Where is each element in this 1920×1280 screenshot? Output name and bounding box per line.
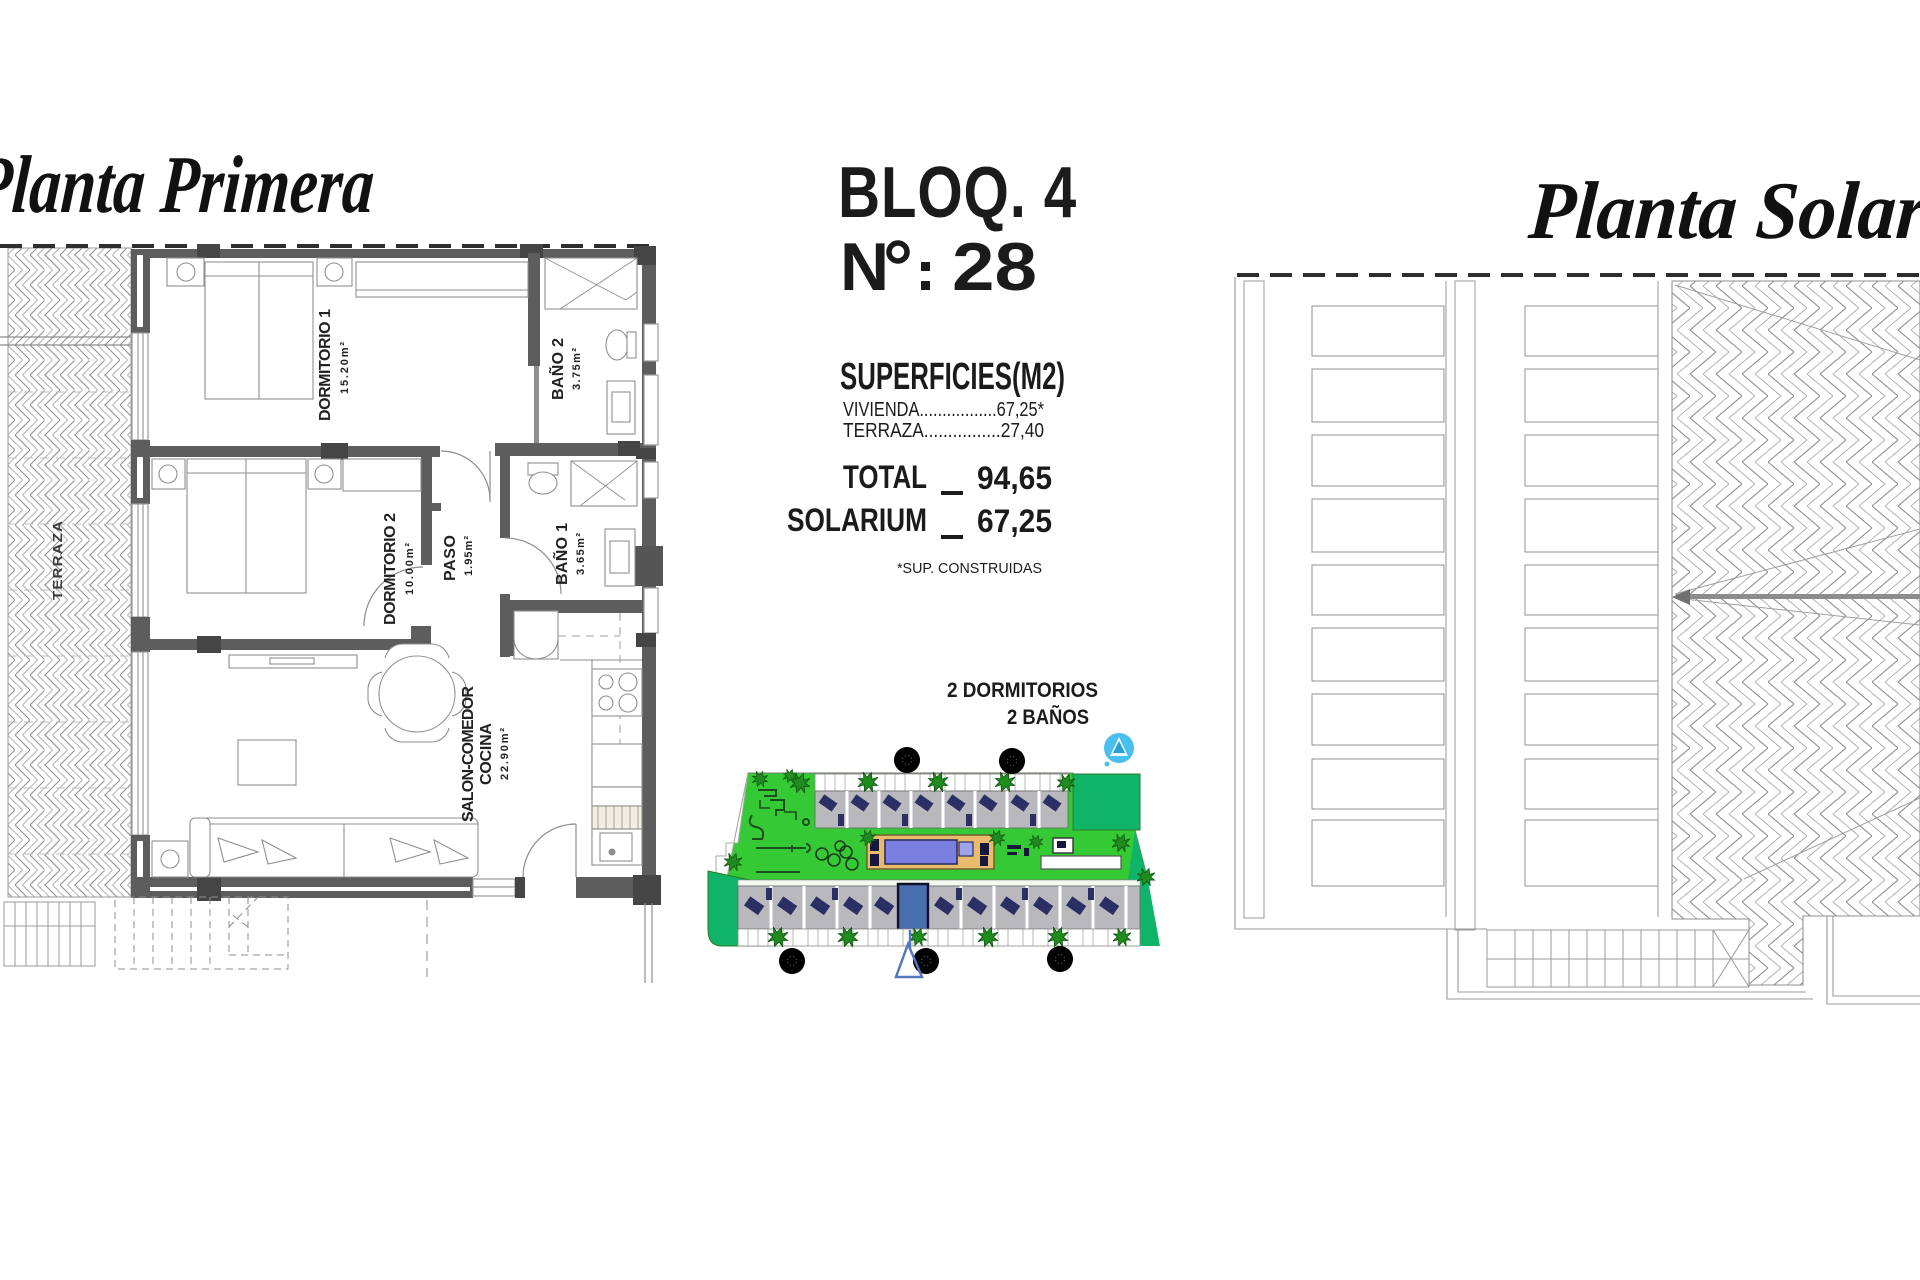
svg-text:10.00m²: 10.00m² <box>404 543 416 595</box>
svg-text:COCINA: COCINA <box>478 723 495 785</box>
svg-text:2 DORMITORIOS: 2 DORMITORIOS <box>947 679 1098 702</box>
svg-text:BAÑO 2: BAÑO 2 <box>547 338 567 400</box>
svg-text:1.95m²: 1.95m² <box>463 536 475 576</box>
svg-text:94,65: 94,65 <box>977 460 1052 496</box>
svg-text:SALON-COMEDOR: SALON-COMEDOR <box>460 686 477 822</box>
svg-text:BLOQ. 4: BLOQ. 4 <box>838 153 1077 233</box>
svg-text:TERRAZA................27,40: TERRAZA................27,40 <box>843 420 1044 442</box>
svg-text:DORMITORIO 1: DORMITORIO 1 <box>317 309 334 421</box>
svg-text:PASO: PASO <box>442 535 459 581</box>
svg-text:28: 28 <box>952 229 1037 305</box>
svg-text:Planta Solarium: Planta Solarium <box>1525 165 1920 256</box>
svg-text:SUPERFICIES(M2): SUPERFICIES(M2) <box>840 356 1065 398</box>
svg-text:2 BAÑOS: 2 BAÑOS <box>1007 706 1089 729</box>
svg-text:N: N <box>840 229 889 305</box>
svg-text:TERRAZA: TERRAZA <box>50 520 65 600</box>
svg-text:SOLARIUM: SOLARIUM <box>787 502 927 538</box>
svg-text:15.20m²: 15.20m² <box>339 342 351 394</box>
svg-text:VIVIENDA.................67,25: VIVIENDA.................67,25* <box>843 399 1044 421</box>
svg-text:22.90m²: 22.90m² <box>499 728 511 780</box>
svg-text:BAÑO 1: BAÑO 1 <box>551 523 571 585</box>
svg-text:TOTAL: TOTAL <box>843 459 927 495</box>
svg-text:DORMITORIO 2: DORMITORIO 2 <box>382 513 399 625</box>
svg-text:67,25: 67,25 <box>977 503 1052 539</box>
svg-text:*SUP. CONSTRUIDAS: *SUP. CONSTRUIDAS <box>897 560 1042 577</box>
svg-text:Planta Primera: Planta Primera <box>0 139 377 230</box>
